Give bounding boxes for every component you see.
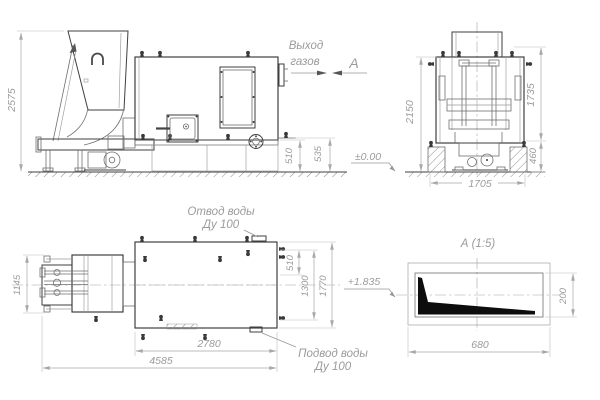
feeder-frame [36, 118, 154, 171]
side-view: 2575 510 535 ±0.00 Выход газов А [6, 31, 395, 177]
boiler-body-front [436, 32, 524, 143]
dim-2575-label: 2575 [6, 88, 18, 113]
dim-680-label: 680 [471, 339, 489, 351]
section-direction-arrow-icon [332, 71, 342, 76]
grate-hatch-plan [167, 324, 197, 329]
valve-symbols-plan [140, 236, 285, 340]
dim-2780-label: 2780 [196, 338, 221, 350]
boiler-body-plan [135, 242, 277, 329]
dim-1705-label: 1705 [468, 178, 492, 190]
hopper-handle-icon [92, 54, 103, 66]
dim-510-plan-label: 510 [285, 254, 296, 271]
level-mark-zero: ±0.00 [351, 151, 395, 171]
dim-680: 680 [408, 327, 550, 357]
feeder-drive-motor [84, 152, 126, 170]
dim-1300-label: 1300 [300, 275, 311, 297]
gas-outlet-label: Выход газов [289, 40, 327, 75]
section-arrow-label: А [348, 55, 358, 71]
dim-510-side: 510 [280, 140, 305, 171]
dim-460: 460 [528, 142, 546, 172]
section-outer-frame [408, 263, 550, 325]
dim-2150-label: 2150 [404, 100, 416, 125]
section-arrow-a: А [332, 55, 367, 76]
foundation-blocks [428, 147, 527, 172]
water-inlet-label-line1: Подвод воды [298, 348, 368, 360]
boiler-body-side [135, 57, 278, 171]
access-hatch [156, 115, 198, 142]
plan-view: Отвод воды Ду 100 Подвод воды Ду 100 114… [12, 206, 395, 373]
dim-4585: 4585 [42, 316, 277, 372]
ground-line-side [28, 172, 347, 177]
dim-1735: 1735 [514, 47, 546, 141]
hopper-strut [53, 43, 77, 141]
grate-bar-profile [418, 277, 535, 315]
water-outlet-label-line2: Ду 100 [201, 219, 240, 231]
burner-flange [249, 135, 263, 149]
inspection-door [220, 67, 255, 128]
feeder-mechanism-plan [40, 255, 135, 322]
dim-1145: 1145 [12, 255, 44, 313]
water-inlet-label-line2: Ду 100 [313, 361, 352, 373]
ground-line-front [405, 172, 545, 177]
gas-outlet-stub [279, 64, 288, 86]
dim-535-side-label: 535 [313, 145, 324, 162]
dim-1735-label: 1735 [525, 83, 537, 107]
dim-1145-label: 1145 [12, 274, 23, 295]
dim-510-plan: 510 [280, 250, 318, 275]
water-outlet-nozzle [252, 236, 266, 241]
section-title: А (1:5) [460, 238, 496, 250]
water-outlet-label-line1: Отвод воды [187, 206, 255, 218]
water-outlet-label: Отвод воды Ду 100 [187, 206, 258, 237]
boiler-drawing: 2575 510 535 ±0.00 Выход газов А [0, 0, 600, 400]
level-zero-label: ±0.00 [355, 151, 381, 163]
dim-460-label: 460 [528, 147, 539, 164]
section-view-a: А (1:5) 680 200 [396, 238, 577, 357]
dim-4585-label: 4585 [149, 355, 173, 367]
dim-1770-label: 1770 [318, 275, 329, 297]
front-view: 2150 1735 460 1705 [404, 22, 546, 190]
level-mark-axis: +1.835 [344, 276, 395, 297]
dim-200-label: 200 [558, 287, 569, 305]
level-axis-label: +1.835 [348, 276, 381, 288]
gas-outlet-label-line1: Выход [289, 40, 324, 52]
dim-510-side-label: 510 [284, 147, 295, 164]
gas-flow-arrow-icon [317, 71, 327, 76]
technical-drawing-canvas: 2575 510 535 ±0.00 Выход газов А [0, 0, 600, 400]
stoker-drive-front [452, 143, 508, 170]
safety-valve-symbols-side [140, 51, 296, 140]
gas-outlet-label-line2: газов [290, 56, 319, 68]
fuel-hopper [68, 31, 128, 110]
water-inlet-label: Подвод воды Ду 100 [262, 333, 368, 373]
